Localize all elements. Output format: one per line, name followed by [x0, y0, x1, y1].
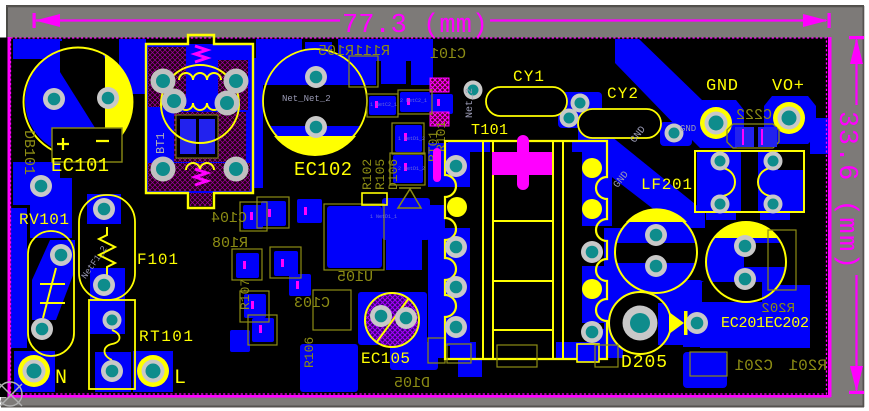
svg-text:R107: R107: [238, 279, 253, 310]
svg-text:D105: D105: [394, 375, 430, 392]
svg-text:EC105: EC105: [361, 350, 410, 368]
svg-text:C222: C222: [736, 107, 772, 124]
svg-text:R201: R201: [789, 357, 827, 375]
svg-text:GND: GND: [680, 124, 696, 134]
svg-text:N: N: [55, 367, 67, 390]
svg-text:R111R105: R111R105: [318, 43, 390, 60]
svg-text:C104: C104: [211, 210, 247, 227]
svg-text:U105: U105: [337, 269, 373, 286]
svg-text:1 NetD1_1: 1 NetD1_1: [370, 214, 397, 220]
svg-text:EC101: EC101: [51, 155, 109, 177]
svg-text:D205: D205: [621, 353, 667, 373]
svg-text:DB101: DB101: [20, 130, 37, 175]
svg-text:RT101: RT101: [139, 328, 193, 346]
svg-text:C201: C201: [735, 357, 773, 375]
svg-text:C101: C101: [430, 46, 466, 63]
svg-text:1 NetC2_1: 1 NetC2_1: [370, 102, 397, 108]
svg-text:T101: T101: [471, 122, 508, 139]
svg-text:77.3 (mm): 77.3 (mm): [342, 11, 488, 41]
svg-text:L: L: [174, 367, 186, 390]
svg-text:2 NetC2_1: 2 NetC2_1: [400, 98, 427, 104]
svg-text:LF201: LF201: [641, 176, 692, 194]
svg-text:C103: C103: [294, 295, 330, 312]
svg-text:BT1: BT1: [154, 132, 168, 154]
svg-text:EC102: EC102: [294, 159, 352, 181]
svg-text:CY2: CY2: [607, 85, 638, 103]
svg-text:Net_Net_2: Net_Net_2: [282, 94, 331, 104]
svg-text:1 NetD1_2: 1 NetD1_2: [398, 136, 425, 142]
svg-text:R106: R106: [302, 337, 317, 368]
svg-text:33.6 (mm): 33.6 (mm): [831, 111, 861, 269]
svg-text:R108: R108: [212, 235, 248, 252]
svg-text:R202: R202: [761, 301, 795, 317]
svg-text:VO+: VO+: [772, 77, 804, 96]
svg-text:GND: GND: [706, 77, 738, 96]
svg-text:Net_2: Net_2: [465, 88, 476, 118]
svg-text:RV101: RV101: [19, 211, 69, 229]
svg-text:2 NetD1_2: 2 NetD1_2: [398, 166, 425, 172]
svg-text:CY1: CY1: [513, 68, 544, 86]
svg-text:EC201EC202: EC201EC202: [721, 315, 809, 332]
svg-text:F101: F101: [137, 251, 178, 269]
